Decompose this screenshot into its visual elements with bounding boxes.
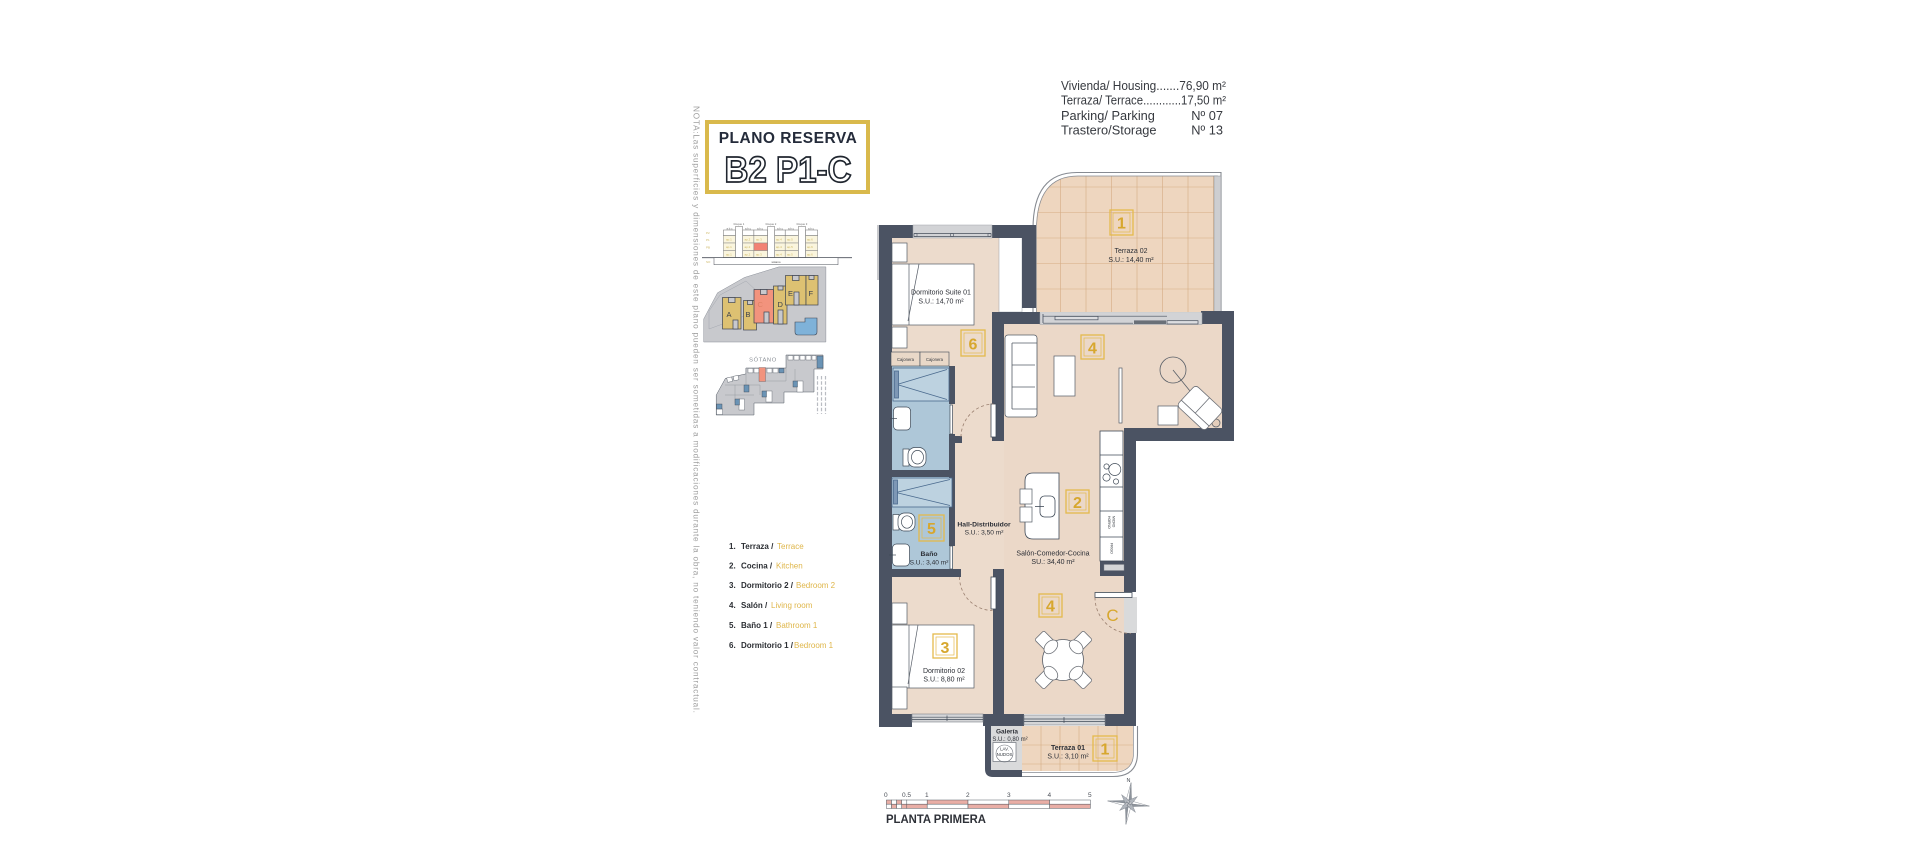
svg-text:2: 2	[966, 792, 970, 799]
svg-text:Baño 1 /: Baño 1 /	[741, 621, 773, 630]
svg-text:Dormitorio 02: Dormitorio 02	[923, 668, 965, 675]
svg-text:a.b.c: a.b.c	[757, 226, 764, 230]
svg-text:Terraza 02: Terraza 02	[1114, 248, 1147, 255]
svg-text:D: D	[778, 300, 784, 309]
svg-text:sótano: sótano	[771, 260, 780, 264]
svg-text:Kitchen: Kitchen	[776, 562, 803, 571]
svg-text:LAV.: LAV.	[1000, 747, 1009, 752]
svg-text:Terraza/ Terrace............17: Terraza/ Terrace............17,50 m²	[1061, 93, 1227, 108]
svg-text:Cajonera: Cajonera	[897, 357, 915, 362]
svg-text:Terraza 01: Terraza 01	[1051, 745, 1085, 752]
svg-text:S.U.: 3,10 m²: S.U.: 3,10 m²	[1047, 754, 1089, 761]
svg-text:Salón /: Salón /	[741, 601, 768, 610]
svg-text:2.: 2.	[729, 562, 736, 571]
svg-text:Dormitorio Suite 01: Dormitorio Suite 01	[911, 290, 971, 297]
svg-text:ap.3: ap.3	[756, 238, 762, 242]
svg-text:Parking/ Parking: Parking/ Parking	[1061, 108, 1155, 123]
svg-text:PLANTA PRIMERA: PLANTA PRIMERA	[886, 813, 987, 826]
svg-text:1: 1	[1101, 742, 1110, 759]
svg-text:MICRO: MICRO	[1112, 516, 1116, 528]
svg-text:HORNO: HORNO	[1107, 516, 1111, 529]
svg-text:ap.4: ap.4	[776, 245, 782, 249]
svg-text:ap.6: ap.6	[807, 238, 813, 242]
svg-text:PB: PB	[706, 246, 710, 250]
svg-text:Cajonera: Cajonera	[926, 357, 944, 362]
svg-text:B: B	[746, 310, 751, 319]
svg-text:a.b.c: a.b.c	[808, 226, 815, 230]
svg-text:S.U.: 8,80 m²: S.U.: 8,80 m²	[923, 677, 965, 684]
svg-text:6.: 6.	[729, 641, 736, 650]
svg-text:Terrace: Terrace	[777, 542, 804, 551]
svg-text:SU.: 34,40 m²: SU.: 34,40 m²	[1031, 559, 1075, 566]
svg-text:S.U.: 14,40 m²: S.U.: 14,40 m²	[1108, 257, 1154, 264]
svg-text:0.5: 0.5	[902, 792, 911, 799]
svg-text:ap.1: ap.1	[726, 238, 732, 242]
svg-text:ap.1: ap.1	[726, 253, 732, 257]
svg-text:bloque 2: bloque 2	[766, 222, 777, 226]
svg-text:0: 0	[884, 792, 888, 799]
svg-text:Dormitorio 1 /: Dormitorio 1 /	[741, 641, 794, 650]
svg-text:a.b.c: a.b.c	[788, 226, 795, 230]
svg-text:ap.2: ap.2	[745, 253, 751, 257]
svg-text:a.b.c: a.b.c	[745, 226, 752, 230]
svg-text:S.U.: 0,80 m²: S.U.: 0,80 m²	[992, 737, 1027, 743]
svg-text:1: 1	[1117, 216, 1126, 233]
svg-text:Cocina /: Cocina /	[741, 562, 773, 571]
svg-text:P2: P2	[706, 231, 710, 235]
svg-text:Galería: Galería	[996, 729, 1018, 736]
svg-text:1: 1	[925, 792, 929, 799]
svg-text:C: C	[1106, 606, 1118, 625]
svg-text:Bathroom 1: Bathroom 1	[776, 621, 818, 630]
svg-text:ap.6: ap.6	[807, 245, 813, 249]
svg-text:6: 6	[969, 337, 978, 354]
svg-text:Trastero/Storage: Trastero/Storage	[1061, 123, 1157, 138]
svg-text:ap.3: ap.3	[756, 253, 762, 257]
svg-text:A: A	[727, 310, 732, 319]
svg-text:ap.4: ap.4	[776, 238, 782, 242]
svg-text:S.U.: 14,70 m²: S.U.: 14,70 m²	[918, 299, 964, 306]
svg-text:Dormitorio 2 /: Dormitorio 2 /	[741, 581, 794, 590]
svg-text:5: 5	[1088, 792, 1092, 799]
svg-text:5.: 5.	[729, 621, 736, 630]
svg-text:SÓTANO: SÓTANO	[749, 357, 777, 364]
svg-text:Bedroom 1: Bedroom 1	[794, 641, 834, 650]
svg-text:PLANO RESERVA: PLANO RESERVA	[719, 130, 858, 147]
svg-text:Nº 07: Nº 07	[1191, 108, 1223, 123]
svg-text:Salón-Comedor-Cocina: Salón-Comedor-Cocina	[1016, 551, 1089, 558]
svg-text:Nº 13: Nº 13	[1191, 123, 1223, 138]
svg-text:NUDOS: NUDOS	[997, 752, 1013, 757]
svg-text:1.: 1.	[729, 542, 736, 551]
svg-text:a.b.c: a.b.c	[777, 226, 784, 230]
svg-text:E: E	[788, 289, 793, 298]
svg-text:Terraza /: Terraza /	[741, 542, 774, 551]
svg-text:Hall-Distribuidor: Hall-Distribuidor	[957, 522, 1011, 529]
svg-text:ap.4: ap.4	[776, 253, 782, 257]
svg-text:3.: 3.	[729, 581, 736, 590]
svg-text:SO: SO	[706, 260, 711, 264]
svg-text:3: 3	[1007, 792, 1011, 799]
svg-text:S.U.: 3,50 m²: S.U.: 3,50 m²	[965, 530, 1005, 537]
svg-text:N: N	[1127, 778, 1131, 784]
svg-text:FRIGO: FRIGO	[1110, 543, 1114, 554]
svg-text:Living room: Living room	[771, 601, 813, 610]
svg-text:ap.6: ap.6	[807, 253, 813, 257]
svg-text:4: 4	[1088, 341, 1097, 358]
svg-text:4: 4	[1048, 792, 1052, 799]
svg-text:ap.2: ap.2	[745, 245, 751, 249]
svg-text:C: C	[758, 300, 764, 309]
svg-text:Bedroom 2: Bedroom 2	[796, 581, 836, 590]
svg-text:3: 3	[941, 640, 950, 657]
svg-text:4.: 4.	[729, 601, 736, 610]
svg-text:2: 2	[1073, 495, 1082, 512]
svg-text:bloque 3: bloque 3	[797, 222, 808, 226]
svg-text:a.b.c: a.b.c	[726, 226, 733, 230]
svg-text:ap.5: ap.5	[787, 253, 793, 257]
svg-text:ap.2: ap.2	[745, 238, 751, 242]
svg-text:ap.5: ap.5	[787, 238, 793, 242]
svg-text:NOTA:Las superficies y dimensi: NOTA:Las superficies y dimensiones de es…	[692, 106, 701, 714]
svg-text:5: 5	[927, 521, 936, 538]
svg-text:B2 P1-C: B2 P1-C	[725, 149, 852, 190]
svg-text:ap.1: ap.1	[726, 245, 732, 249]
svg-text:Vivienda/ Housing.......76,90: Vivienda/ Housing.......76,90 m²	[1061, 78, 1227, 93]
svg-text:S.U.: 3,40 m²: S.U.: 3,40 m²	[910, 560, 950, 567]
svg-text:P1: P1	[706, 238, 710, 242]
svg-text:F: F	[809, 289, 814, 298]
svg-text:Baño: Baño	[921, 551, 938, 558]
svg-text:4: 4	[1046, 599, 1055, 616]
svg-text:bloque 1: bloque 1	[734, 222, 745, 226]
svg-text:ap.5: ap.5	[787, 245, 793, 249]
